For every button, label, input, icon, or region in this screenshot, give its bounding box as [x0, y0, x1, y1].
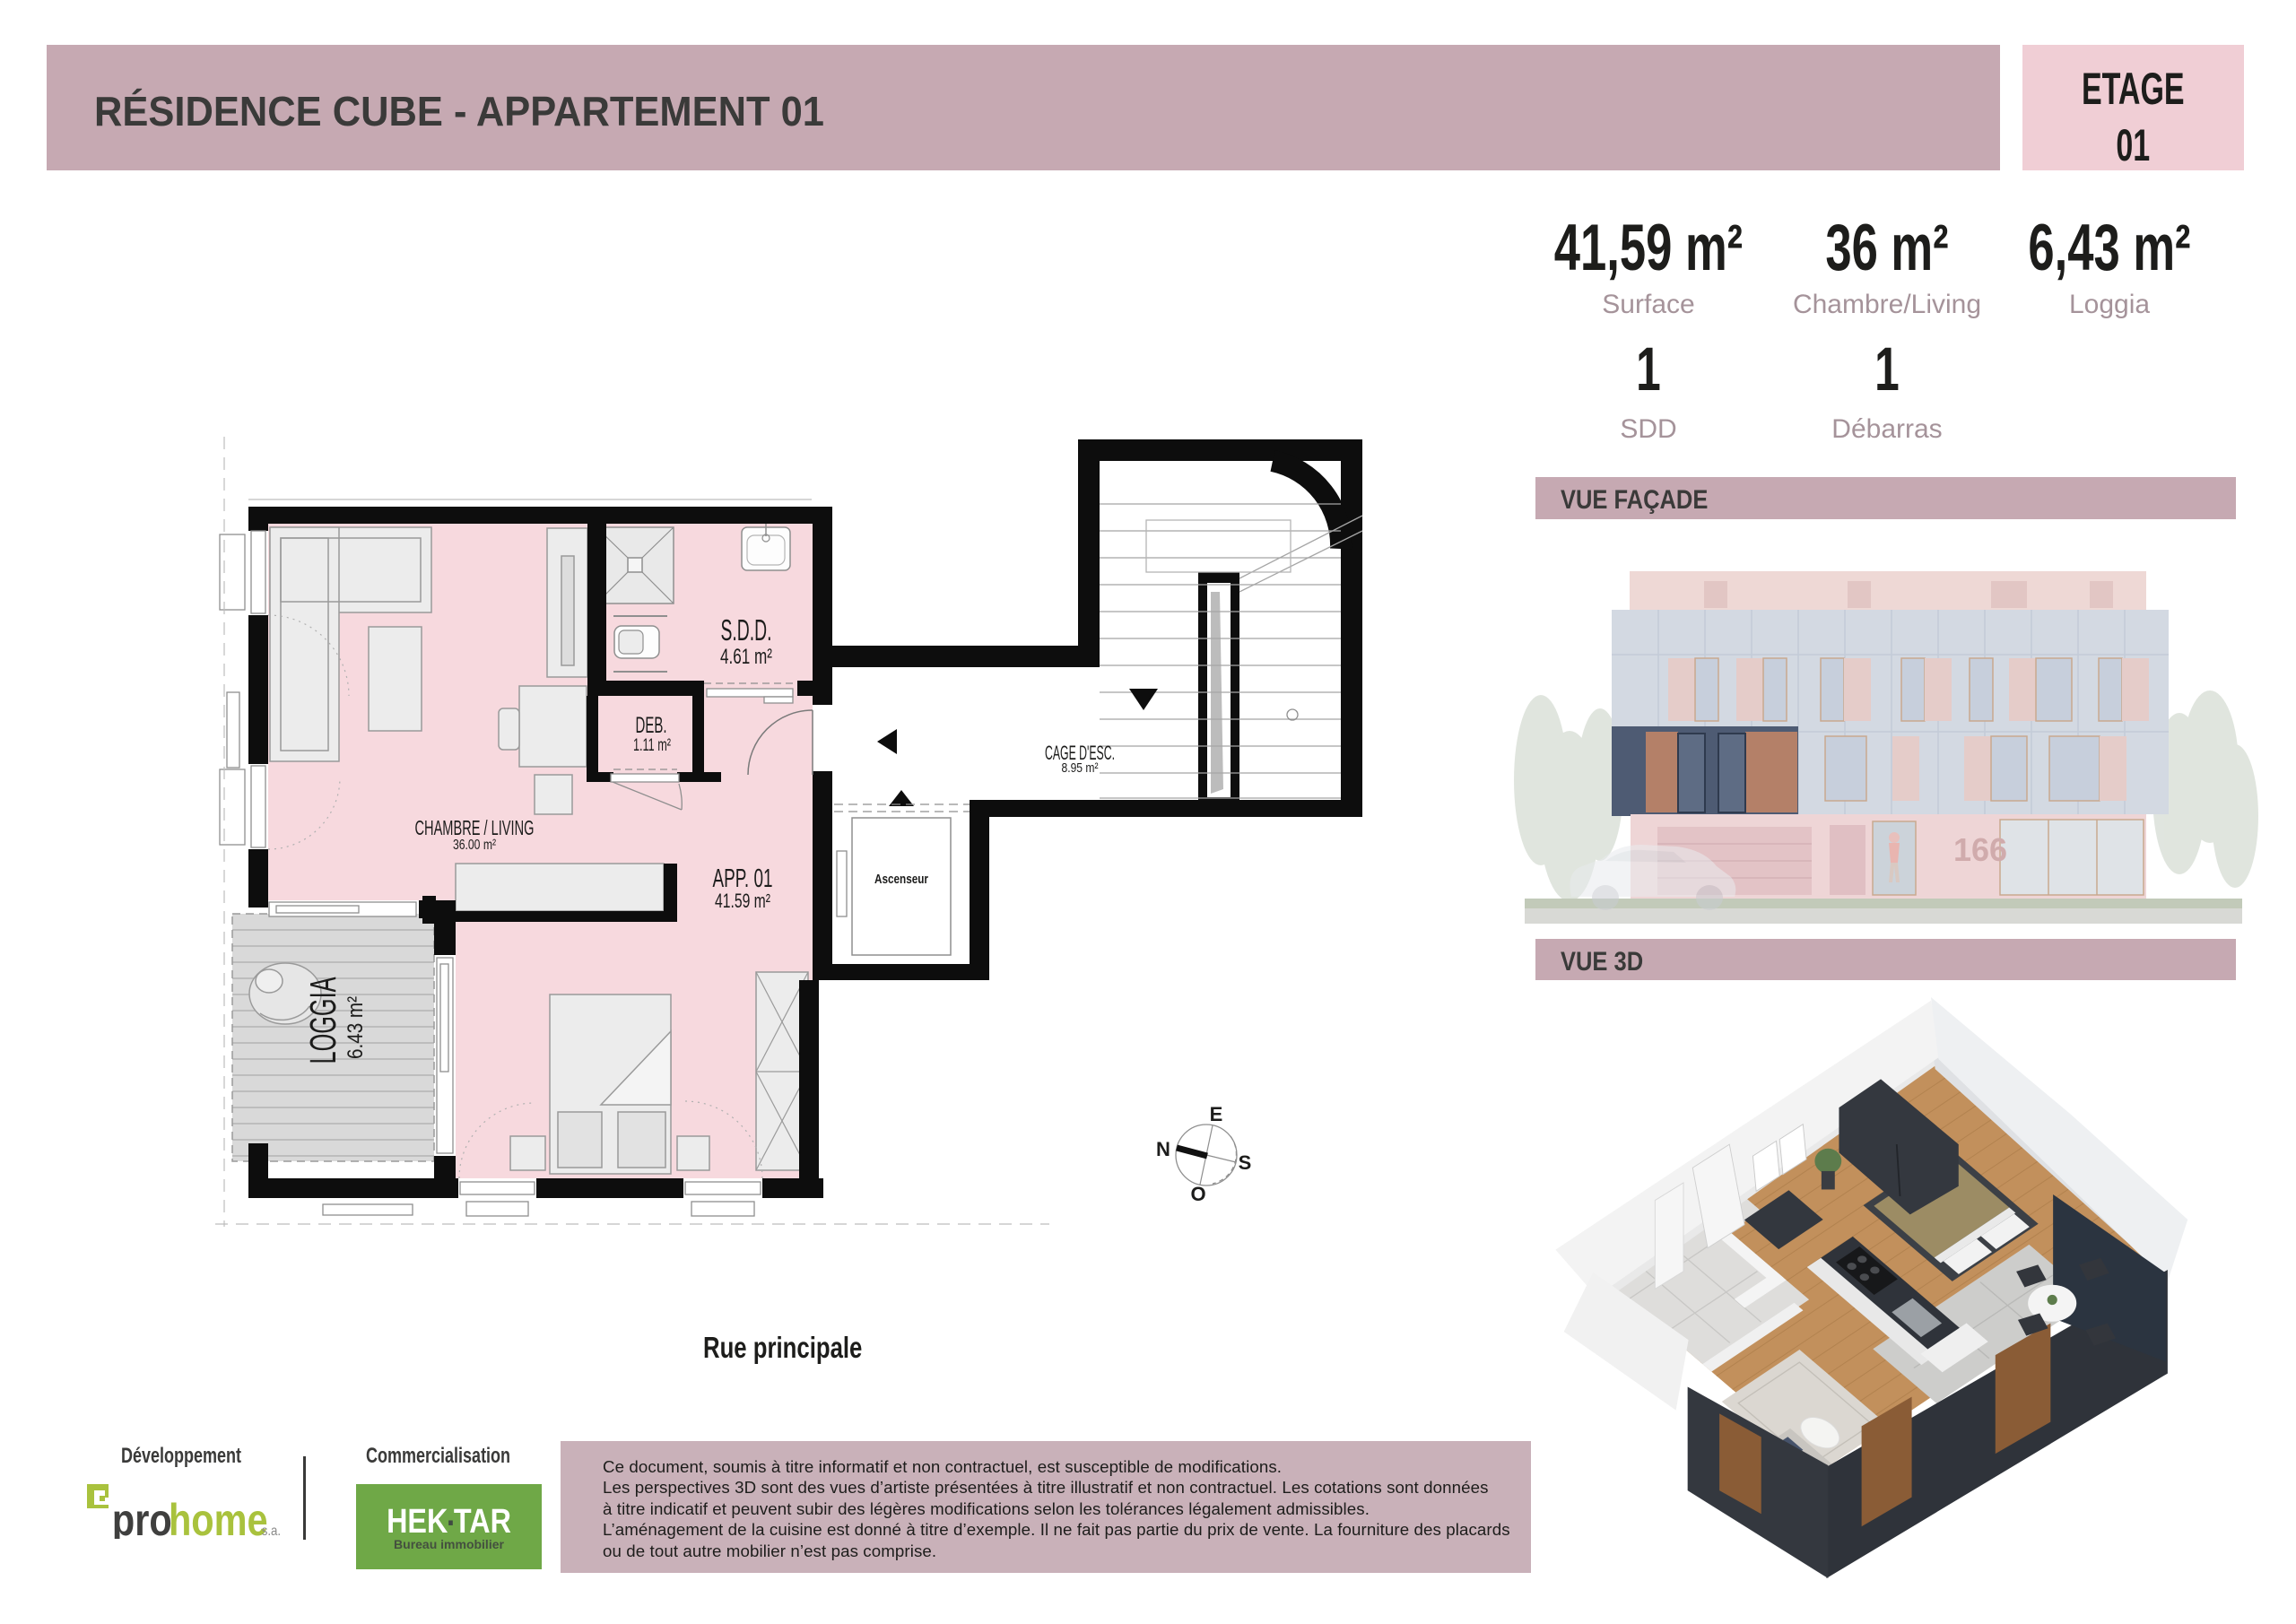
svg-text:DEB.: DEB. [636, 713, 667, 738]
svg-text:E: E [1210, 1103, 1223, 1125]
svg-text:N: N [1156, 1138, 1170, 1160]
svg-text:6.43 m²: 6.43 m² [344, 996, 368, 1059]
svg-text:LOGGIA: LOGGIA [302, 977, 344, 1064]
svg-text:41.59 m²: 41.59 m² [715, 890, 770, 912]
svg-text:1.11 m²: 1.11 m² [633, 736, 671, 755]
svg-text:Ascenseur: Ascenseur [874, 872, 928, 887]
svg-text:CHAMBRE / LIVING: CHAMBRE / LIVING [415, 816, 535, 839]
svg-text:8.95 m²: 8.95 m² [1062, 760, 1099, 776]
svg-text:166: 166 [1953, 831, 2007, 868]
svg-text:36.00 m²: 36.00 m² [453, 838, 497, 853]
svg-text:S: S [1239, 1151, 1252, 1174]
svg-text:S.D.D.: S.D.D. [721, 613, 772, 647]
svg-text:4.61 m²: 4.61 m² [720, 645, 772, 669]
svg-text:O: O [1190, 1183, 1205, 1205]
